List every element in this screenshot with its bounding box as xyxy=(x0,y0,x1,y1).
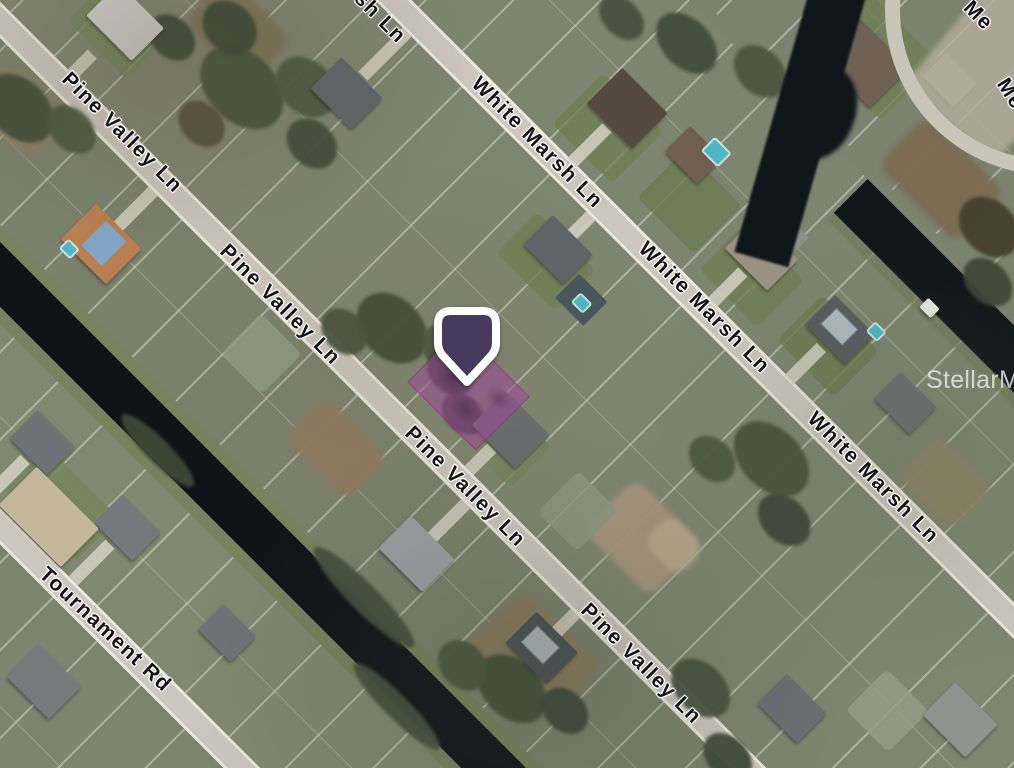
satellite-map[interactable]: Pine Valley LnPine Valley LnPine Valley … xyxy=(0,0,1014,768)
watermark: StellarMLS xyxy=(926,366,1014,395)
roof-tarp xyxy=(81,221,126,266)
curved-road-clip xyxy=(860,0,1014,200)
solar-panels xyxy=(521,625,561,665)
solar-panels xyxy=(820,308,858,346)
marker-shape xyxy=(438,311,496,382)
location-marker-icon[interactable] xyxy=(425,300,509,388)
